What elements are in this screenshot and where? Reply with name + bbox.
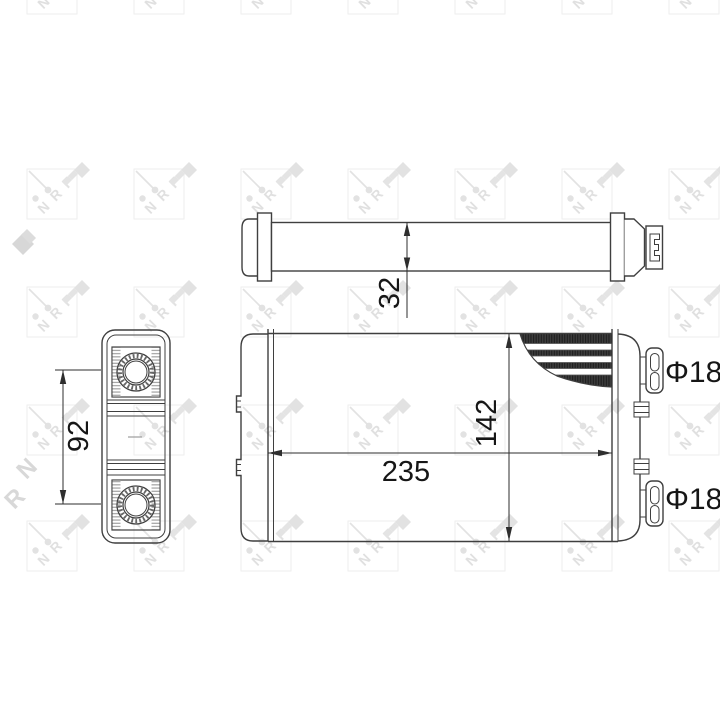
dim-92: 92 (55, 370, 101, 504)
left-tank (237, 334, 269, 541)
dim-142: 142 (471, 334, 512, 541)
core-tube (515, 369, 615, 376)
arrow-up (60, 370, 66, 384)
front-view: 142 235 Φ18 Φ18 (237, 329, 720, 542)
pipe-label-top: Φ18 (665, 356, 720, 389)
dim-label-width: 235 (382, 456, 430, 488)
right-flange (611, 213, 625, 281)
arrow-up (506, 334, 512, 348)
dim-label-height: 142 (471, 399, 503, 447)
pipe-label-bottom: Φ18 (665, 483, 720, 516)
core-tube (515, 344, 615, 351)
arrow-down (506, 527, 512, 541)
pipe-connector-top (640, 348, 663, 393)
core-tube (515, 356, 615, 363)
dim-label-depth: 32 (374, 277, 406, 309)
pipe-connector-bottom (640, 481, 663, 526)
left-flange (258, 213, 272, 281)
right-tank-brackets (634, 402, 649, 474)
left-end-cap (242, 219, 258, 276)
dim-235: 235 (268, 450, 612, 488)
pipe-port-top (112, 347, 160, 397)
tube-body (272, 223, 612, 272)
side-view (102, 330, 170, 543)
drawing-canvas: NRFNRFNRFNRFNRFNRFNRFNRFNRFNRFNRFNRFNRFN… (0, 0, 720, 720)
right-tank (618, 334, 640, 541)
pipe-clip (646, 226, 663, 269)
technical-drawing: 32 (0, 0, 720, 720)
dim-label-pitch: 92 (63, 420, 95, 452)
arrow-down (60, 490, 66, 504)
arrow-left (268, 450, 282, 456)
fin-hatch (515, 333, 615, 389)
side-middle-bands (107, 400, 165, 475)
top-view (242, 213, 663, 281)
right-end-cap (625, 219, 645, 276)
pipe-port-bottom (112, 480, 160, 530)
arrow-right (598, 450, 612, 456)
